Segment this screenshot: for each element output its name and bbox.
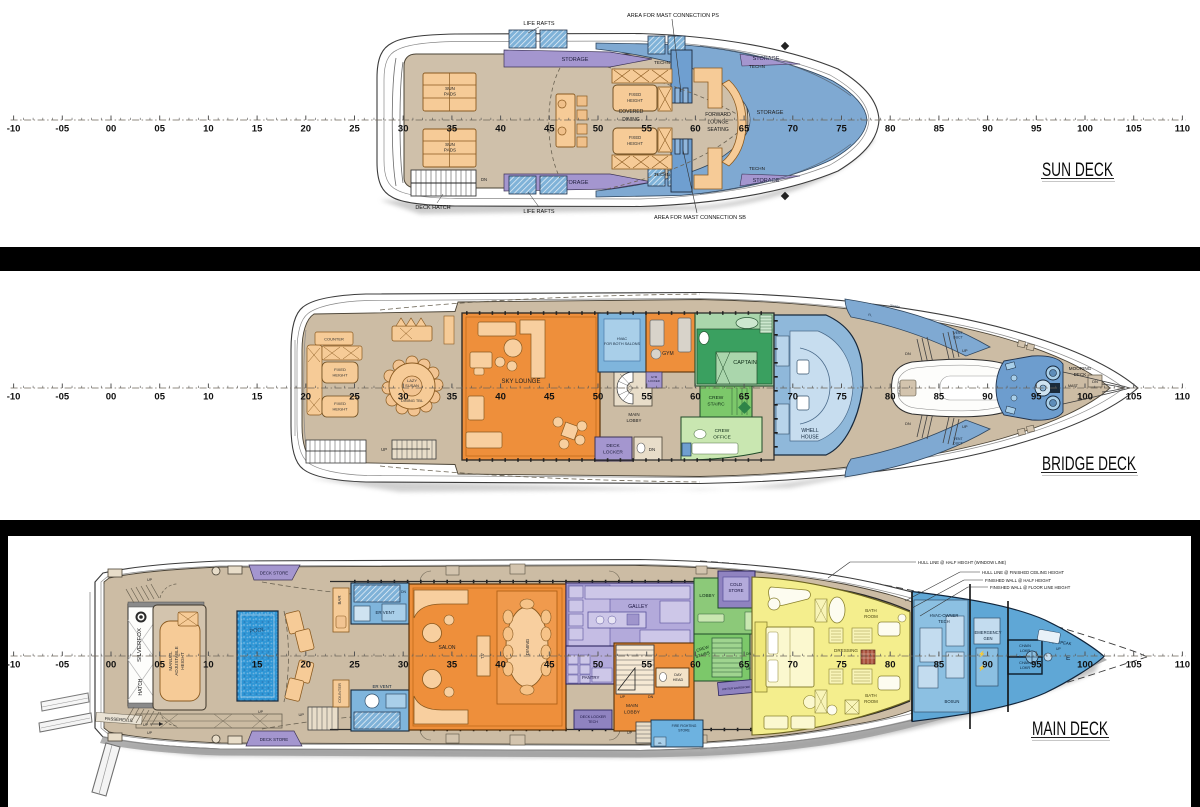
svg-text:SUN DECK: SUN DECK — [1042, 160, 1113, 181]
svg-text:100: 100 — [1077, 124, 1093, 135]
svg-text:15: 15 — [252, 660, 263, 671]
svg-text:DAY: DAY — [674, 673, 682, 677]
svg-text:00: 00 — [106, 660, 117, 671]
svg-text:110: 110 — [1175, 124, 1190, 135]
svg-text:ROOM: ROOM — [864, 699, 878, 704]
svg-text:AL: AL — [658, 741, 662, 745]
svg-text:STORE: STORE — [678, 729, 690, 733]
svg-text:105: 105 — [1126, 392, 1143, 403]
svg-text:SUN: SUN — [445, 86, 455, 91]
svg-text:50: 50 — [593, 124, 604, 135]
svg-text:SKY LOUNGE: SKY LOUNGE — [502, 379, 541, 385]
svg-text:55: 55 — [641, 392, 652, 403]
svg-text:110: 110 — [1175, 660, 1190, 671]
svg-text:STORAGE: STORAGE — [753, 178, 780, 184]
svg-text:-05: -05 — [55, 392, 69, 403]
svg-text:TECHN: TECHN — [749, 166, 765, 171]
svg-text:VENT: VENT — [953, 331, 962, 335]
svg-text:MAIN DECK: MAIN DECK — [1032, 719, 1108, 740]
svg-text:UP: UP — [1056, 647, 1061, 651]
svg-text:80: 80 — [885, 124, 896, 135]
svg-text:SUN: SUN — [445, 142, 455, 147]
svg-text:BOSUN: BOSUN — [945, 699, 960, 704]
svg-text:90: 90 — [982, 392, 993, 403]
svg-text:DN: DN — [401, 590, 406, 594]
svg-text:BRIDGE DECK: BRIDGE DECK — [1042, 454, 1136, 475]
svg-text:PANTRY: PANTRY — [582, 675, 599, 680]
svg-text:50: 50 — [593, 660, 604, 671]
svg-text:30: 30 — [398, 124, 409, 135]
svg-text:15: 15 — [252, 124, 263, 135]
svg-text:HEIGHT: HEIGHT — [627, 141, 643, 146]
svg-text:LOBBY: LOBBY — [624, 710, 641, 716]
svg-text:STORE: STORE — [728, 588, 743, 593]
svg-text:05: 05 — [154, 660, 165, 671]
svg-text:LIFE RAFTS: LIFE RAFTS — [523, 21, 555, 27]
svg-text:SALON: SALON — [439, 645, 456, 651]
svg-text:DECK HATCH: DECK HATCH — [415, 205, 450, 211]
svg-text:80: 80 — [885, 660, 896, 671]
svg-text:-10: -10 — [7, 392, 21, 403]
svg-text:STORAGE: STORAGE — [753, 56, 780, 62]
svg-text:75: 75 — [836, 392, 847, 403]
svg-text:UP: UP — [962, 424, 968, 429]
svg-text:00: 00 — [106, 124, 117, 135]
svg-text:45: 45 — [544, 660, 555, 671]
svg-text:105: 105 — [1126, 124, 1143, 135]
svg-text:80: 80 — [885, 392, 896, 403]
svg-text:MAST: MAST — [1068, 384, 1079, 388]
svg-text:CAPTAIN: CAPTAIN — [733, 360, 756, 366]
svg-text:HEIGHT: HEIGHT — [332, 407, 348, 412]
svg-text:UP: UP — [627, 731, 633, 735]
svg-text:MOORING: MOORING — [1069, 366, 1092, 371]
svg-text:ROOM: ROOM — [864, 614, 878, 619]
svg-text:10: 10 — [203, 392, 214, 403]
svg-text:HVAC: HVAC — [617, 337, 628, 341]
svg-text:90: 90 — [982, 660, 993, 671]
svg-text:UP: UP — [620, 695, 626, 699]
svg-text:PADS: PADS — [444, 148, 456, 153]
svg-text:30: 30 — [398, 392, 409, 403]
svg-text:UP: UP — [143, 723, 149, 727]
svg-text:⚡: ⚡ — [978, 650, 985, 658]
svg-text:COUNTER: COUNTER — [337, 683, 342, 703]
svg-text:DECK STORE: DECK STORE — [260, 737, 289, 742]
svg-text:FINISHED WALL @ FLOOR LINE HEI: FINISHED WALL @ FLOOR LINE HEIGHT — [990, 585, 1071, 590]
svg-text:DN: DN — [746, 652, 751, 656]
svg-text:50: 50 — [593, 392, 604, 403]
svg-text:LOBBY: LOBBY — [626, 418, 641, 423]
svg-text:EMERGENCY: EMERGENCY — [975, 630, 1002, 635]
svg-text:85: 85 — [934, 660, 945, 671]
svg-text:FIXED: FIXED — [334, 367, 346, 372]
svg-text:-10: -10 — [7, 660, 21, 671]
svg-text:UP: UP — [381, 447, 387, 452]
svg-text:70: 70 — [788, 392, 799, 403]
svg-text:BATH: BATH — [865, 693, 876, 698]
svg-text:25: 25 — [349, 660, 360, 671]
svg-text:55: 55 — [641, 660, 652, 671]
svg-text:SUSAN: SUSAN — [405, 383, 419, 388]
svg-text:-05: -05 — [55, 124, 69, 135]
svg-text:HEIGHT: HEIGHT — [180, 652, 185, 670]
svg-text:100: 100 — [1077, 392, 1093, 403]
svg-text:20: 20 — [301, 392, 312, 403]
svg-text:MAIN: MAIN — [626, 703, 639, 709]
svg-text:MAIN: MAIN — [628, 412, 639, 417]
svg-text:DUCT: DUCT — [953, 336, 962, 340]
svg-text:LIFE RAFTS: LIFE RAFTS — [523, 209, 555, 215]
svg-text:DN: DN — [905, 421, 911, 426]
svg-text:WHELL: WHELL — [801, 428, 818, 434]
svg-text:HEIGHT: HEIGHT — [332, 373, 348, 378]
svg-text:100: 100 — [1077, 660, 1093, 671]
svg-text:FINISHED WALL @ HALF HEIGHT: FINISHED WALL @ HALF HEIGHT — [985, 578, 1052, 583]
svg-text:75: 75 — [836, 124, 847, 135]
svg-text:DUCT: DUCT — [953, 442, 962, 446]
svg-text:105: 105 — [1126, 660, 1143, 671]
svg-text:DN: DN — [648, 695, 654, 699]
svg-text:10: 10 — [203, 124, 214, 135]
svg-text:LOKR: LOKR — [1020, 666, 1031, 670]
svg-text:HEIGHT: HEIGHT — [627, 98, 643, 103]
svg-text:STORAGE: STORAGE — [757, 110, 784, 116]
svg-text:HVAC-OWNER: HVAC-OWNER — [930, 613, 959, 618]
svg-text:65: 65 — [739, 392, 750, 403]
svg-text:AREA FOR MAST CONNECTION SB: AREA FOR MAST CONNECTION SB — [654, 215, 746, 221]
svg-text:LOBBY: LOBBY — [699, 593, 714, 598]
svg-text:60: 60 — [690, 392, 701, 403]
svg-text:GYM: GYM — [662, 351, 673, 357]
svg-text:DECK LOCKER: DECK LOCKER — [580, 715, 606, 719]
svg-text:FIXED: FIXED — [629, 92, 641, 97]
svg-text:45: 45 — [544, 392, 555, 403]
svg-text:55: 55 — [641, 124, 652, 135]
svg-text:10: 10 — [203, 660, 214, 671]
svg-text:TECH: TECH — [938, 619, 949, 624]
svg-text:70: 70 — [788, 660, 799, 671]
svg-text:DECK STORE: DECK STORE — [260, 571, 289, 576]
svg-text:85: 85 — [934, 124, 945, 135]
svg-text:95: 95 — [1031, 124, 1042, 135]
svg-text:DRESSING: DRESSING — [834, 648, 858, 653]
svg-text:HOUSE: HOUSE — [801, 435, 819, 441]
svg-text:40: 40 — [495, 124, 506, 135]
svg-text:40: 40 — [495, 660, 506, 671]
svg-text:CHAIN: CHAIN — [1019, 644, 1031, 648]
svg-text:HULL LINE @ HALF HEIGHT (WINDO: HULL LINE @ HALF HEIGHT (WINDOW LINE) — [918, 560, 1007, 565]
svg-text:45: 45 — [544, 124, 555, 135]
svg-text:-10: -10 — [7, 124, 21, 135]
svg-text:25: 25 — [349, 392, 360, 403]
svg-text:05: 05 — [154, 124, 165, 135]
svg-text:MANUEL: MANUEL — [168, 651, 173, 671]
svg-text:UP: UP — [147, 731, 153, 735]
svg-text:GEN: GEN — [983, 636, 992, 641]
svg-text:75: 75 — [836, 660, 847, 671]
svg-text:GALLEY: GALLEY — [628, 604, 648, 610]
svg-text:FIRE FIGHTING: FIRE FIGHTING — [672, 724, 697, 728]
svg-text:SEATING: SEATING — [707, 127, 729, 133]
svg-text:FIXED: FIXED — [629, 135, 641, 140]
svg-text:FORWARD: FORWARD — [705, 112, 731, 118]
svg-text:FIXED: FIXED — [334, 401, 346, 406]
svg-text:TECH: TECH — [588, 720, 598, 724]
svg-text:PADS: PADS — [444, 92, 456, 97]
svg-text:35: 35 — [447, 392, 458, 403]
svg-text:STAIRC: STAIRC — [707, 402, 725, 408]
svg-text:TECHN: TECHN — [749, 64, 765, 69]
svg-text:ADJUSTABLE: ADJUSTABLE — [174, 646, 179, 675]
svg-text:DINING: DINING — [525, 638, 531, 655]
svg-text:60: 60 — [690, 660, 701, 671]
svg-text:20: 20 — [301, 124, 312, 135]
svg-text:05: 05 — [154, 392, 165, 403]
svg-text:65: 65 — [739, 124, 750, 135]
svg-text:ER VENT: ER VENT — [375, 610, 394, 615]
svg-text:60: 60 — [690, 124, 701, 135]
svg-text:UP: UP — [298, 712, 304, 717]
svg-text:HEAD: HEAD — [673, 678, 684, 682]
svg-text:CREW: CREW — [709, 395, 724, 401]
svg-text:35: 35 — [447, 660, 458, 671]
svg-text:95: 95 — [1031, 660, 1042, 671]
svg-text:COVERED: COVERED — [619, 109, 644, 115]
svg-text:95: 95 — [1031, 392, 1042, 403]
svg-text:COUNTER: COUNTER — [324, 337, 344, 342]
svg-text:HULL LINE @ FINISHED CEILING H: HULL LINE @ FINISHED CEILING HEIGHT — [982, 570, 1064, 575]
svg-text:AREA FOR MAST CONNECTION PS: AREA FOR MAST CONNECTION PS — [627, 13, 719, 19]
svg-text:30: 30 — [398, 660, 409, 671]
svg-text:BATH: BATH — [865, 608, 876, 613]
svg-text:15: 15 — [252, 392, 263, 403]
svg-text:STORAGE: STORAGE — [562, 57, 589, 63]
svg-text:HATCH: HATCH — [138, 678, 144, 695]
svg-text:TECHN: TECHN — [654, 172, 670, 177]
svg-text:SILVERFOX: SILVERFOX — [137, 627, 143, 662]
svg-text:VENT: VENT — [953, 437, 962, 441]
svg-text:110: 110 — [1175, 392, 1190, 403]
svg-text:DN: DN — [481, 177, 487, 182]
svg-text:BAR: BAR — [337, 595, 342, 604]
svg-text:90: 90 — [982, 124, 993, 135]
svg-text:40: 40 — [495, 392, 506, 403]
svg-text:00: 00 — [106, 392, 117, 403]
svg-text:UP: UP — [147, 578, 153, 582]
svg-text:65: 65 — [739, 660, 750, 671]
svg-text:DECK: DECK — [606, 443, 620, 449]
svg-text:COLD: COLD — [730, 582, 742, 587]
svg-text:70: 70 — [788, 124, 799, 135]
svg-text:TECHN: TECHN — [654, 60, 670, 65]
svg-text:35: 35 — [447, 124, 458, 135]
svg-text:LOCKER: LOCKER — [648, 379, 660, 383]
svg-text:DN: DN — [905, 351, 911, 356]
svg-text:OFFICE: OFFICE — [713, 435, 731, 441]
svg-text:-05: -05 — [55, 660, 69, 671]
svg-text:DN: DN — [649, 447, 656, 452]
svg-text:20: 20 — [301, 660, 312, 671]
svg-text:FOR BOTH SALONS: FOR BOTH SALONS — [604, 342, 641, 346]
svg-text:UP: UP — [258, 710, 264, 714]
svg-text:LOCKER: LOCKER — [603, 450, 623, 456]
svg-text:25: 25 — [349, 124, 360, 135]
svg-text:UP: UP — [962, 348, 968, 353]
svg-text:ER VENT: ER VENT — [372, 684, 391, 689]
svg-text:85: 85 — [934, 392, 945, 403]
svg-text:CREW: CREW — [715, 428, 730, 434]
